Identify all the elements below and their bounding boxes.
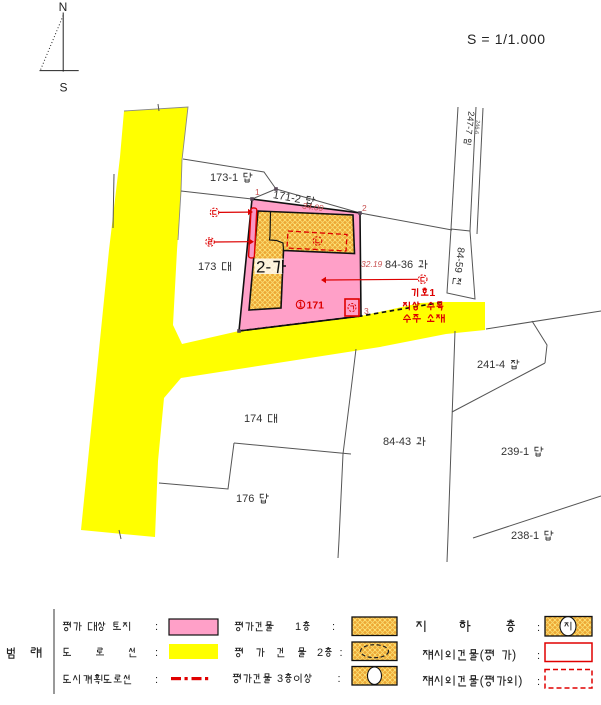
svg-text::: : xyxy=(537,622,540,634)
svg-text:1: 1 xyxy=(429,287,435,299)
svg-text:3: 3 xyxy=(277,673,283,685)
svg-text:239-1: 239-1 xyxy=(501,446,529,458)
svg-text:3: 3 xyxy=(364,306,369,316)
svg-text:S: S xyxy=(59,81,67,95)
svg-text:174: 174 xyxy=(244,413,262,425)
svg-text:S = 1/1.000: S = 1/1.000 xyxy=(467,31,546,47)
svg-text:173-1: 173-1 xyxy=(210,172,238,184)
svg-text::: : xyxy=(537,650,540,662)
svg-text:84-43: 84-43 xyxy=(383,436,411,448)
svg-text:84-36: 84-36 xyxy=(385,259,413,271)
svg-text:2: 2 xyxy=(317,647,323,659)
svg-text:): ) xyxy=(512,648,516,662)
svg-text:241-4: 241-4 xyxy=(477,359,505,371)
svg-text:176: 176 xyxy=(236,493,254,505)
svg-text:2-: 2- xyxy=(256,258,271,277)
svg-text::: : xyxy=(155,674,158,686)
svg-text::: : xyxy=(155,621,158,633)
svg-text:173: 173 xyxy=(198,261,216,273)
svg-text::: : xyxy=(332,621,335,633)
svg-text::: : xyxy=(537,676,540,688)
svg-text:1: 1 xyxy=(255,187,260,197)
svg-text:2: 2 xyxy=(362,203,367,213)
svg-text:1: 1 xyxy=(295,621,301,633)
svg-text:): ) xyxy=(518,674,522,688)
svg-text:32.19: 32.19 xyxy=(361,259,383,269)
svg-text:171: 171 xyxy=(307,300,325,312)
svg-text:N: N xyxy=(59,0,68,14)
svg-text::: : xyxy=(340,647,343,659)
svg-text::: : xyxy=(155,647,158,659)
svg-text:238-1: 238-1 xyxy=(511,530,539,542)
svg-text::: : xyxy=(338,673,341,685)
svg-text:1: 1 xyxy=(298,301,303,310)
